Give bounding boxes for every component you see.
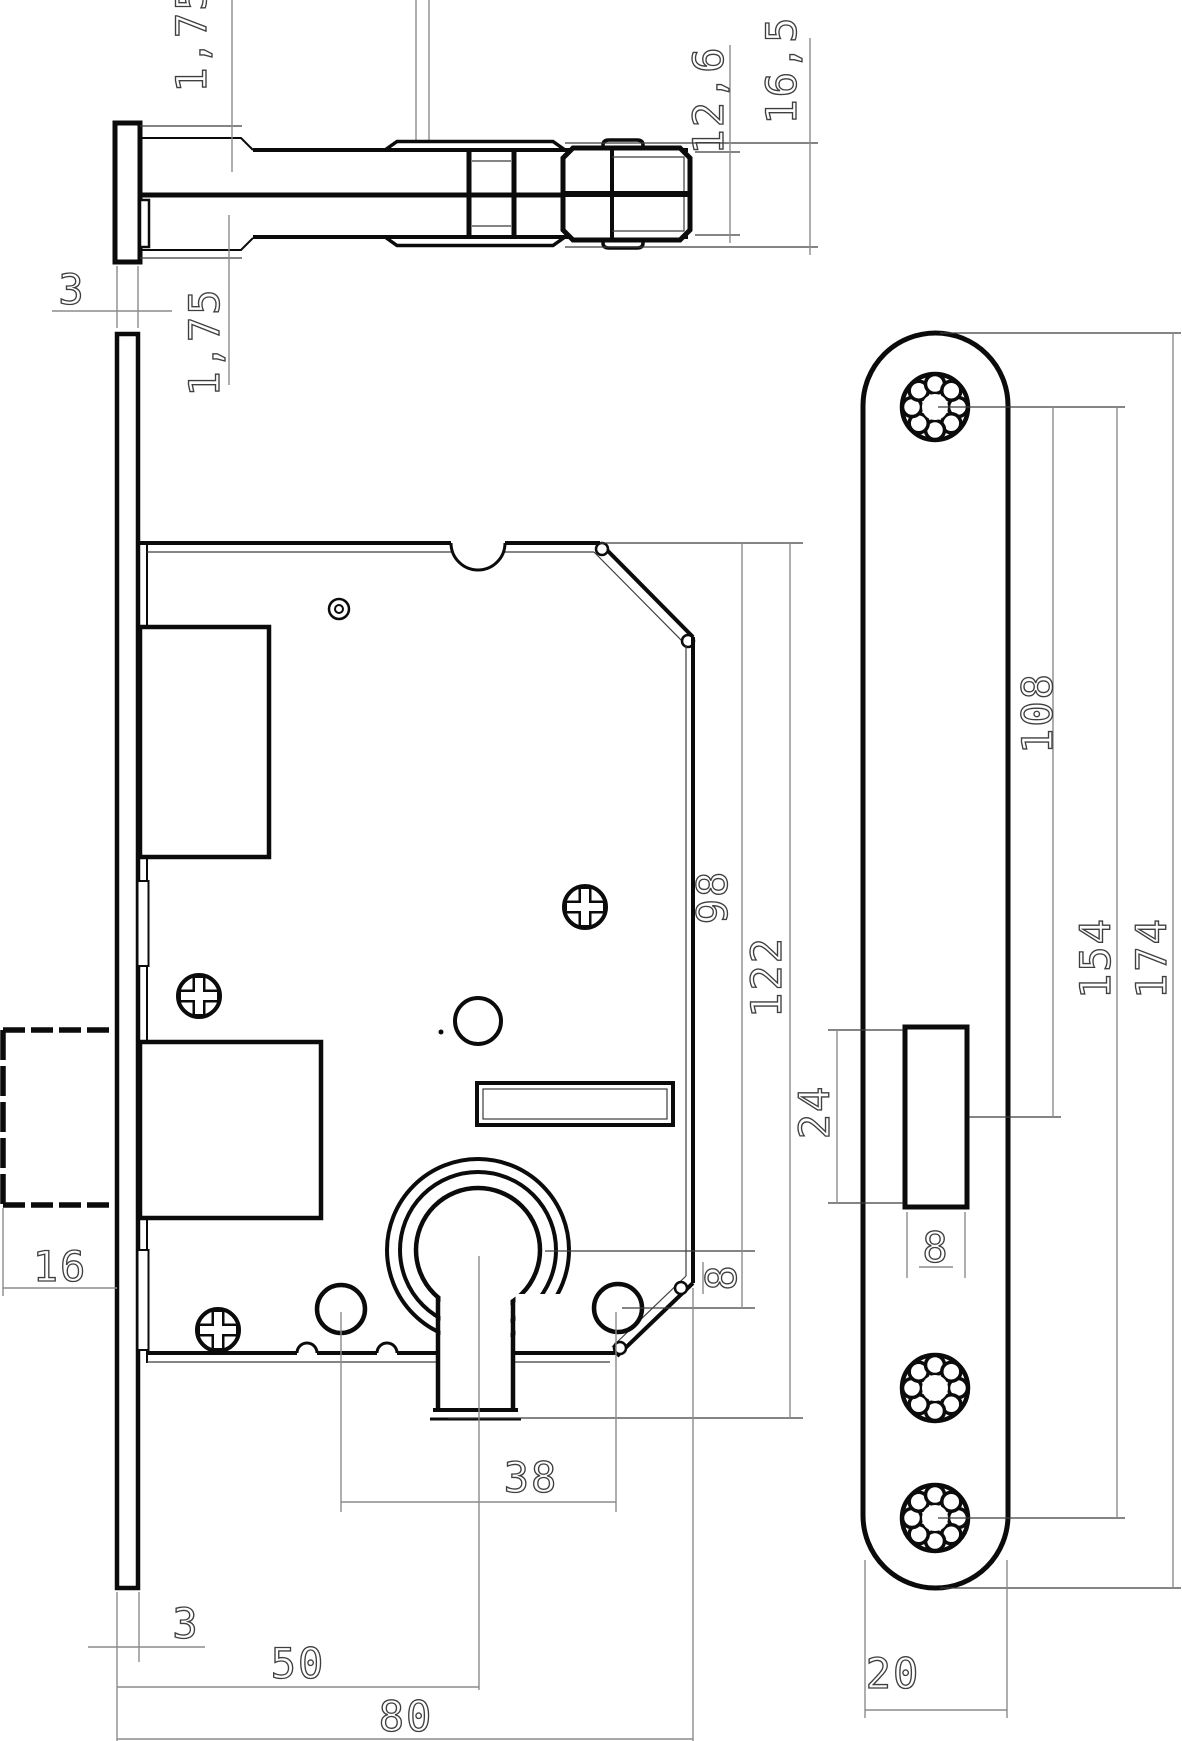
- dim-latch-plate-thickness-bottom: 1,75: [180, 287, 229, 396]
- dim-cylinder-to-screw: 8: [697, 1263, 746, 1290]
- deadbolt-housing-box: [140, 1042, 321, 1218]
- dim-case-top-to-keyway: 122: [742, 936, 791, 1018]
- technical-drawing-canvas: 1,75 1,75 12,6 16,5 3: [0, 0, 1182, 1741]
- latch-faceplate-section: [115, 123, 140, 262]
- phillips-screw-bottom: [197, 1309, 239, 1351]
- rivet-hole: [329, 599, 349, 619]
- faceplate-side-bar: [117, 334, 138, 1588]
- lock-case-side-view: 3: [3, 265, 803, 1741]
- dim-latch-window-height: 24: [790, 1085, 839, 1140]
- faceplate-front-view: 108 154 174 24 8 20: [790, 333, 1181, 1718]
- latch-cross-section-view: 1,75 1,75 12,6 16,5: [115, 0, 818, 397]
- dim-latch-plate-thickness-top: 1,75: [167, 0, 216, 93]
- case-top-notch: [451, 543, 505, 570]
- dim-faceplate-thickness-top: 3: [58, 265, 85, 314]
- latch-window: [905, 1027, 967, 1207]
- phillips-screw-top: [178, 975, 220, 1017]
- phillips-screw-right: [564, 886, 606, 928]
- dim-backset: 50: [271, 1639, 326, 1688]
- dim-line-80: [117, 1288, 693, 1741]
- dim-case-top-to-cylinder: 98: [688, 870, 737, 925]
- dim-latch-bolt-height: 12,6: [684, 45, 733, 154]
- dim-latch-outer-height: 16,5: [757, 15, 806, 124]
- deadbolt-projection: [3, 1030, 117, 1205]
- dim-plate-length: 174: [1127, 917, 1176, 999]
- latch-housing-box: [140, 627, 269, 857]
- dim-screw-distance: 38: [504, 1453, 559, 1502]
- spindle-hole: [455, 998, 501, 1044]
- latch-bolt-head: [563, 140, 690, 248]
- dim-deadbolt-throw: 16: [33, 1242, 88, 1291]
- dim-plate-top-to-latch: 108: [1013, 672, 1062, 754]
- dim-case-depth: 80: [379, 1692, 434, 1741]
- dim-plate-width: 20: [866, 1649, 921, 1698]
- dim-faceplate-thickness-bottom: 3: [172, 1599, 199, 1648]
- dim-latch-window-width: 8: [922, 1223, 949, 1272]
- dim-plate-screw-distance: 154: [1071, 917, 1120, 999]
- lock-drawing-svg: 1,75 1,75 12,6 16,5 3: [0, 0, 1182, 1741]
- torx-screw-hole-middle: [902, 1355, 968, 1421]
